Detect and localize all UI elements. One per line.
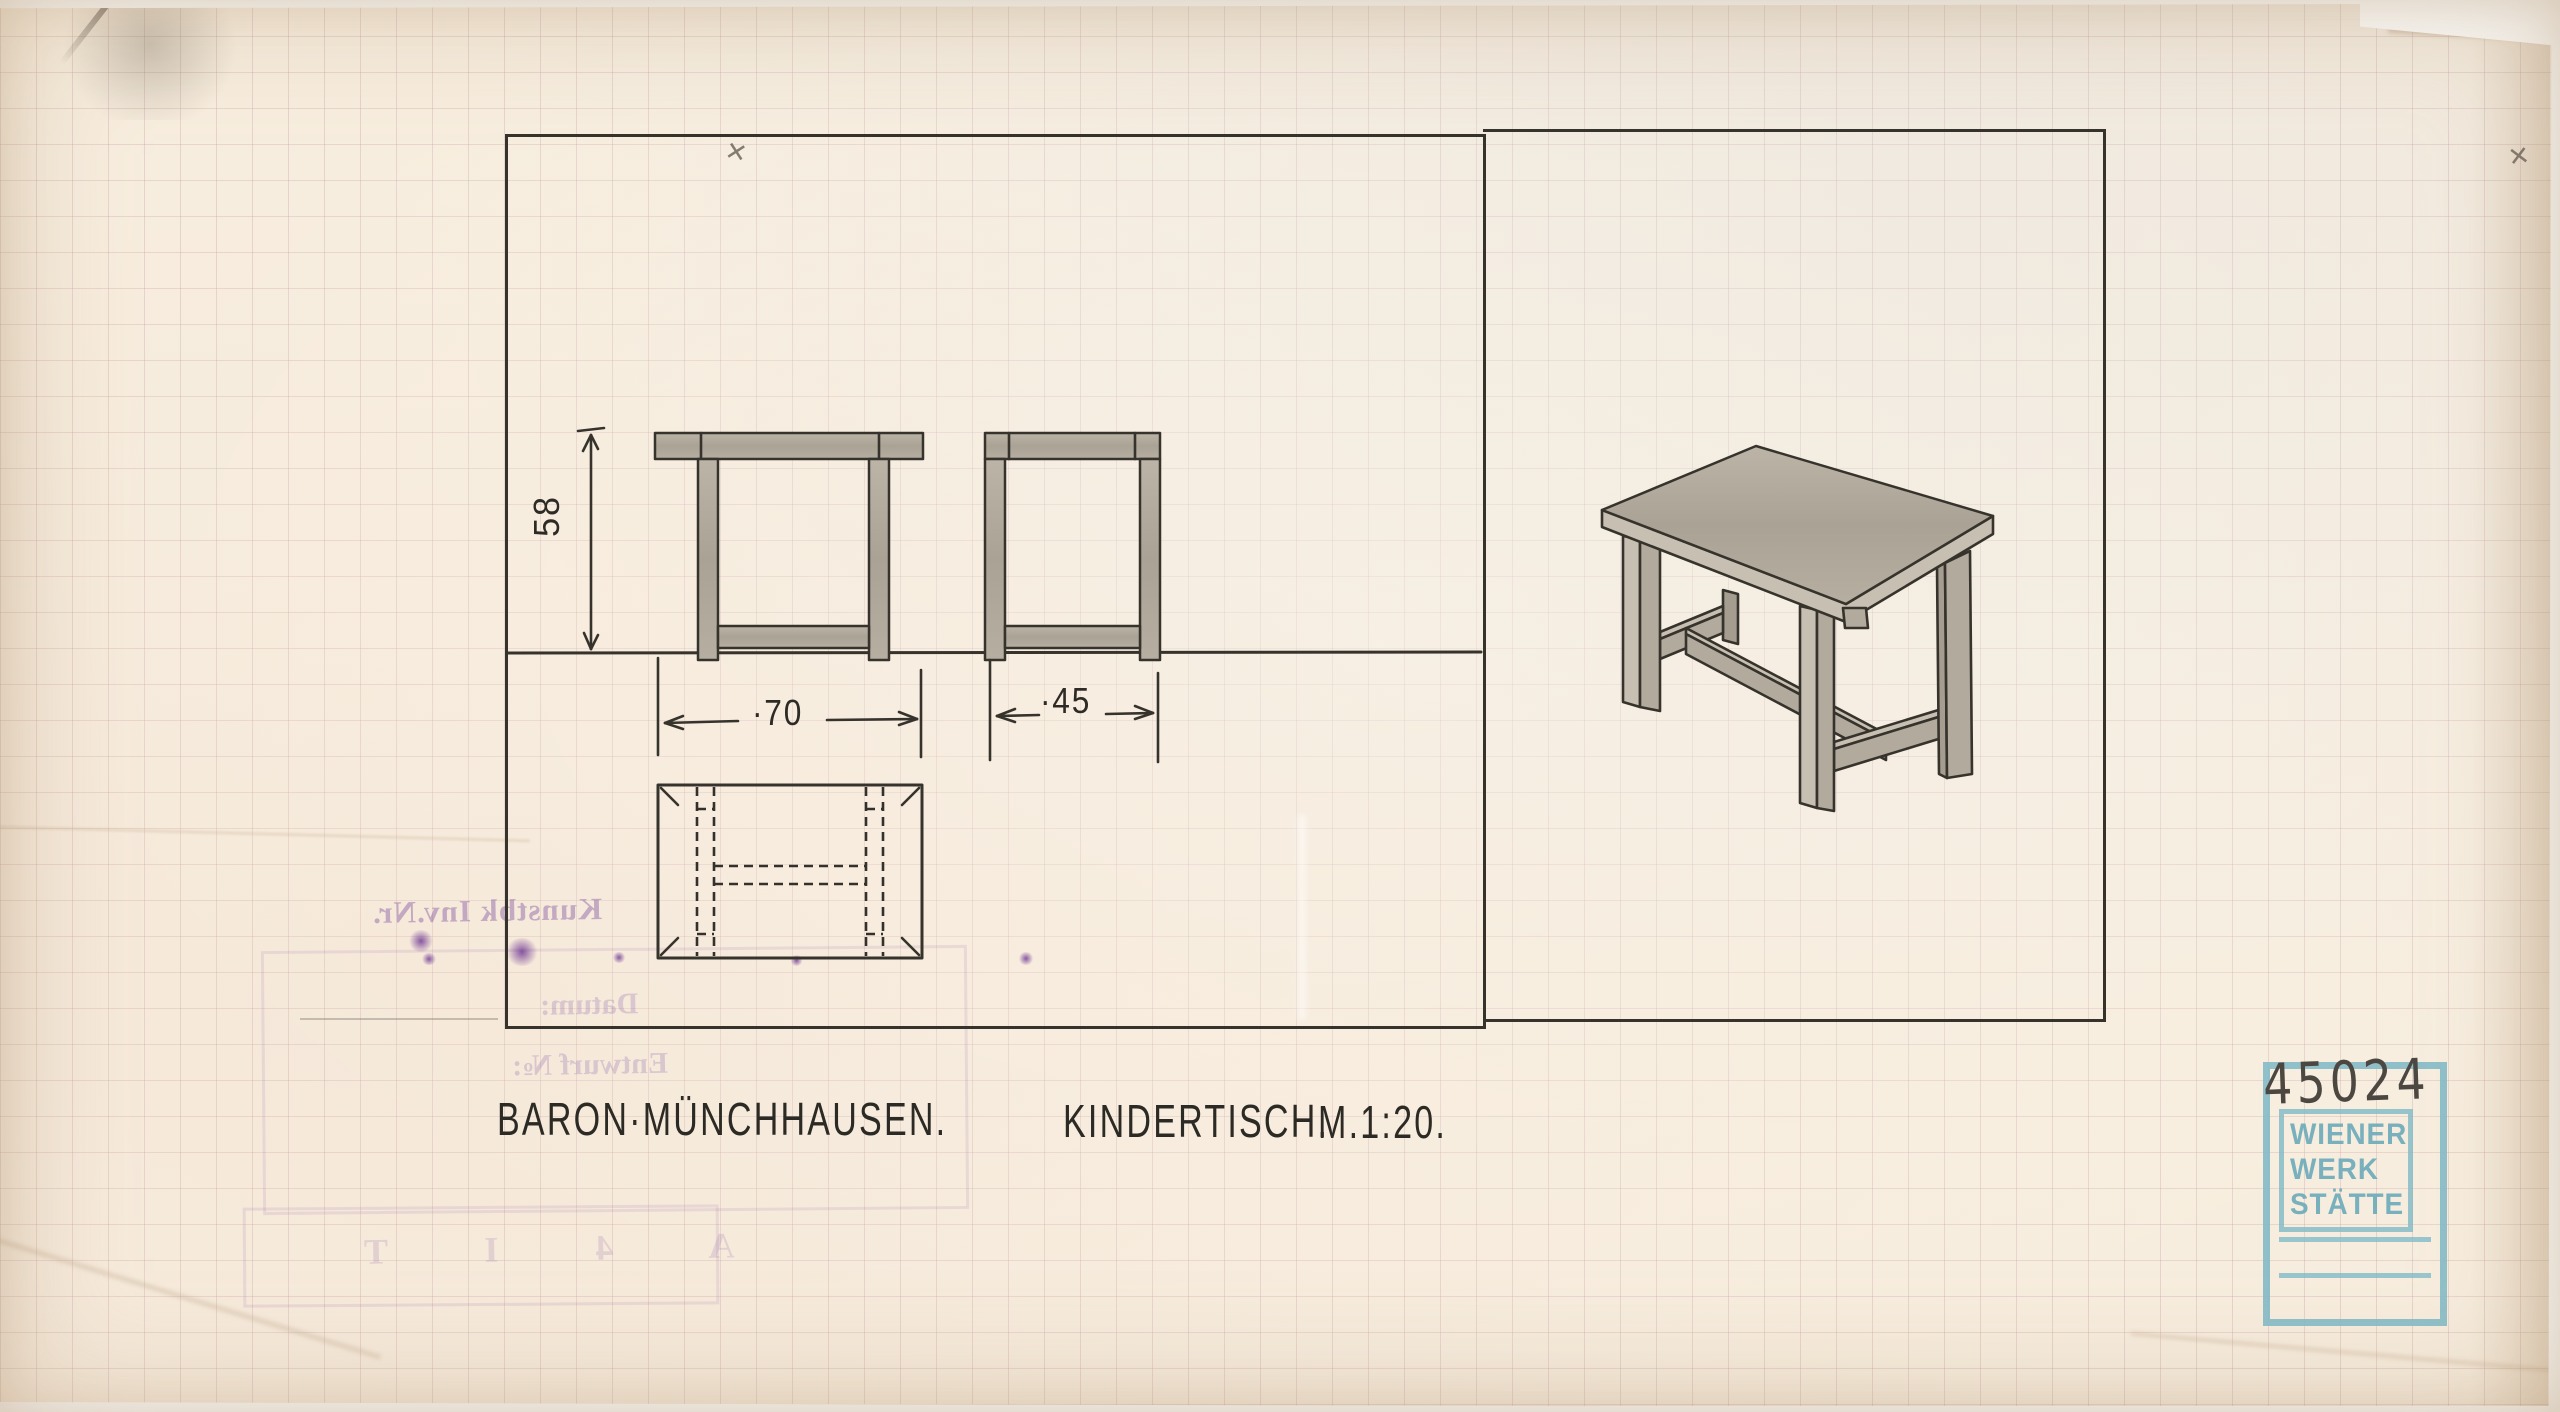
verso-letter-row: A 4 I T: [320, 1224, 735, 1273]
table-back-leg: [1723, 590, 1738, 644]
pencil-x-mark: ✕: [2506, 141, 2532, 174]
side-elevation-view: [985, 433, 1160, 660]
scanned-drawing-sheet: Kunstbk Inv.Nr. Datum: Entwurf №: A 4 I …: [0, 0, 2560, 1412]
perspective-table-drawing: [1560, 430, 2060, 830]
wiener-werkstaette-stamp: 45024 WIENER WERK STÄTTE: [2263, 1062, 2447, 1326]
scale-label: M.1:20.: [1318, 1095, 1447, 1149]
orthographic-views-drawing: [505, 128, 1505, 1028]
paper-edge-right: [2549, 0, 2560, 1412]
table-corner-block: [1843, 608, 1868, 628]
paper-edge-bottom-right: [1600, 1406, 2560, 1412]
dimension-height-label: 58: [526, 495, 568, 537]
inventory-number: 45024: [2262, 1047, 2431, 1118]
table-perspective: [1602, 446, 1993, 811]
ink-blot: [408, 930, 434, 952]
verso-design-number-stamp: Entwurf №:: [512, 1047, 669, 1084]
stamp-line: WERK: [2290, 1152, 2400, 1187]
dimension-width-label: ·70: [752, 692, 803, 734]
stamp-text-box: WIENER WERK STÄTTE: [2279, 1109, 2413, 1232]
object-title-label: KINDERTISCH.: [1063, 1094, 1329, 1148]
ink-blot: [421, 953, 437, 965]
pencil-guide-line: [300, 1018, 498, 1020]
table-leg: [1640, 539, 1660, 711]
stamp-line: WIENER: [2290, 1117, 2400, 1152]
table-leg: [1623, 536, 1640, 707]
stamp-rule: [2279, 1273, 2431, 1278]
table-leg: [1800, 606, 1817, 808]
dimension-depth-label: ·45: [1040, 680, 1091, 722]
stamp-rule: [2279, 1237, 2431, 1242]
stamp-line: STÄTTE: [2290, 1187, 2400, 1222]
height-dimension: [578, 428, 604, 649]
front-elevation-view: [655, 433, 923, 660]
table-leg: [1817, 610, 1834, 811]
client-name-label: BARON·MÜNCHHAUSEN.: [497, 1092, 947, 1146]
table-leg: [1945, 551, 1972, 778]
plan-view: [658, 785, 922, 958]
